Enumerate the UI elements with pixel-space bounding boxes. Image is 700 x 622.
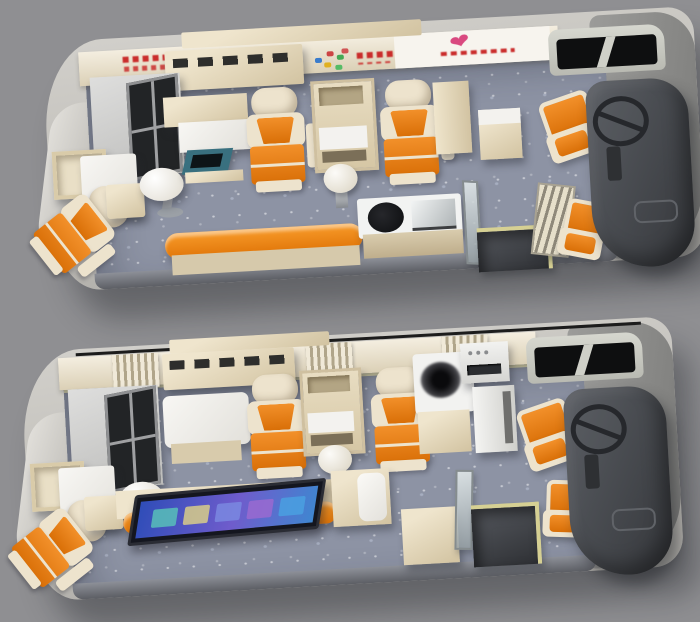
window-divider [572,342,594,378]
instrument-buttons [468,351,472,355]
chair-back-pad [256,116,295,144]
blood-center-logo [312,45,349,73]
tv-screen-content [135,486,318,539]
step-well-cabinet [401,506,460,565]
bus-top-layout: ❤ [41,2,700,296]
instrument-with-display [460,341,510,384]
bench-cabinet [331,468,392,527]
louver-vents [169,354,287,370]
shelf-open-top [319,86,364,106]
table-base-cabinet [171,440,242,464]
louver-vents [173,52,295,68]
seat-pad [554,129,591,158]
chair-back-pad [390,109,429,137]
tv-tile [183,505,211,526]
shelf-open-top [307,375,350,393]
wheel-spoke [574,418,623,440]
tv-tile [151,507,179,528]
window-glass [534,342,636,378]
wall-slogan-decal-2 [356,49,397,65]
dash-vent [584,454,600,489]
table-top [139,167,185,202]
tv-tile [215,502,243,523]
tall-white-cabinet [472,385,518,453]
glovebox [611,507,656,531]
chair-back-pad [257,403,296,431]
instrument-display [467,364,502,376]
tall-storage-cabinet [432,81,472,155]
pedestal-table [139,167,188,221]
shelf-white-counter [319,125,368,150]
shelf-lower-opening [322,149,367,162]
entry-step-well [471,502,542,568]
chair-seat-seam [251,449,305,455]
centrifuge-bowl [420,361,462,399]
front-corner-window [526,332,644,384]
side-cabinet [478,108,523,160]
front-corner-window [548,24,666,76]
logo-colored-dots [315,58,322,63]
tv-tile [279,496,307,517]
steel-sink [411,199,457,231]
donor-chair-left [242,86,310,193]
window-glass [556,34,658,70]
window-curtain-slats [112,353,160,390]
window-divider [595,34,617,70]
tv-tile [247,499,275,520]
registration-desktop [178,119,252,153]
shelf-white-counter [307,411,354,434]
wheel-spoke [597,110,646,132]
dash-vent [606,146,622,181]
bus-bottom-layout [19,312,684,606]
monitor-screen [190,153,223,168]
round-stool [323,163,359,209]
seat-pad [532,437,569,466]
supply-shelf-unit [310,78,379,173]
table-base [157,207,184,218]
render-canvas: ❤ [0,0,700,622]
seat-pad [564,233,597,255]
louvered-overhead-cabinet [164,44,304,92]
glovebox [633,199,678,223]
bench-white-cushion [357,472,388,521]
cabinet-slot [502,391,513,443]
cabinet-top [478,108,521,125]
chair-seat-seam [384,155,438,161]
stool-seat [323,163,359,194]
supply-shelf-unit [299,367,366,456]
device-cabinet-base [417,409,471,454]
induction-hob [367,201,405,233]
chair-seat-seam [251,162,305,168]
